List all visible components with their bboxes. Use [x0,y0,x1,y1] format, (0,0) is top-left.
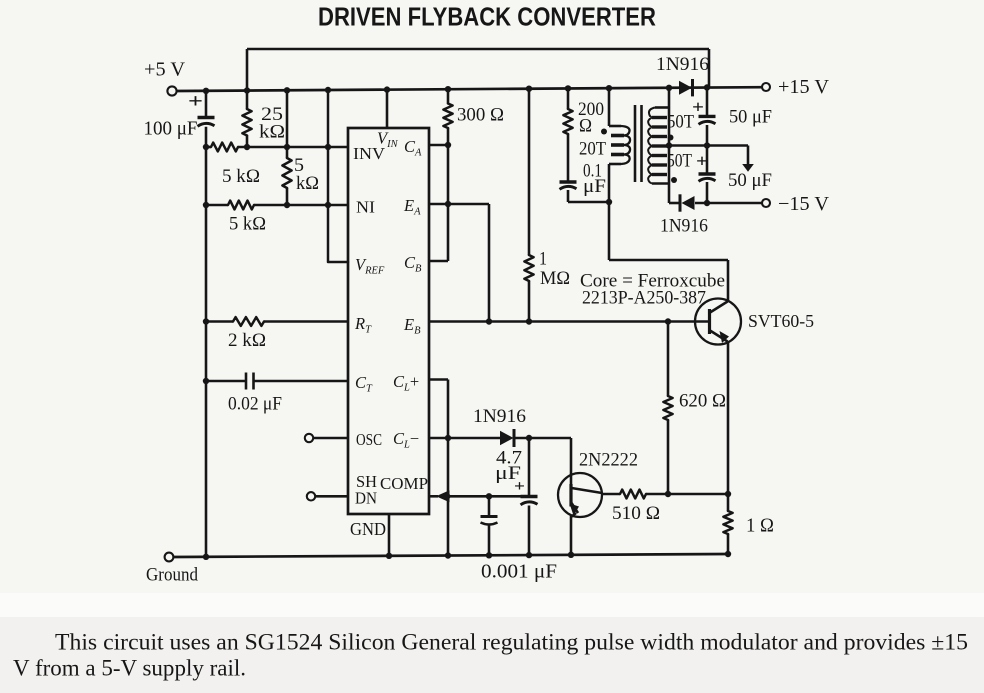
svg-text:50T: 50T [667,151,692,172]
svg-text:300 Ω: 300 Ω [457,105,504,126]
svg-text:2213P-A250-387: 2213P-A250-387 [582,289,706,309]
svg-text:2N2222: 2N2222 [579,450,638,471]
svg-text:This circuit uses an SG1524 Si: This circuit uses an SG1524 Silicon Gene… [55,630,968,656]
svg-text:GND: GND [350,519,386,539]
svg-text:5 kΩ: 5 kΩ [222,166,260,187]
svg-text:+: + [514,478,525,495]
svg-text:620 Ω: 620 Ω [679,391,726,412]
svg-text:1N916: 1N916 [656,54,709,75]
svg-text:INV: INV [353,144,385,163]
svg-text:+: + [692,97,704,117]
svg-text:50 μF: 50 μF [729,107,772,128]
svg-text:1: 1 [539,249,547,270]
svg-text:510 Ω: 510 Ω [612,503,660,524]
svg-text:μF: μF [583,176,606,197]
svg-text:kΩ: kΩ [259,122,285,143]
svg-text:DN: DN [355,489,377,508]
svg-text:5 kΩ: 5 kΩ [229,214,266,235]
svg-text:1 Ω: 1 Ω [746,515,774,537]
svg-text:100 μF: 100 μF [144,118,198,140]
svg-text:kΩ: kΩ [296,173,319,194]
svg-text:0.001 μF: 0.001 μF [481,562,557,583]
svg-text:COMP: COMP [380,474,428,493]
svg-text:20T: 20T [579,139,606,160]
svg-text:−15 V: −15 V [778,193,830,215]
svg-text:2 kΩ: 2 kΩ [228,330,266,351]
svg-text:OSC: OSC [356,430,382,449]
svg-text:MΩ: MΩ [540,268,570,289]
svg-text:+15 V: +15 V [778,76,830,98]
svg-text:50T: 50T [667,112,694,133]
svg-text:SVT60-5: SVT60-5 [748,311,814,331]
svg-text:DRIVEN FLYBACK CONVERTER: DRIVEN FLYBACK CONVERTER [318,2,656,32]
svg-text:NI: NI [356,198,375,217]
svg-text:Ω: Ω [579,116,592,137]
svg-text:+: + [188,91,203,113]
svg-text:1N916: 1N916 [660,216,708,237]
svg-text:50 μF: 50 μF [728,170,772,191]
svg-text:1N916: 1N916 [473,406,526,427]
svg-text:+5 V: +5 V [144,59,186,81]
svg-text:V from a 5-V supply rail.: V from a 5-V supply rail. [13,656,246,682]
svg-text:Ground: Ground [146,565,198,586]
svg-text:0.02 μF: 0.02 μF [228,394,282,415]
